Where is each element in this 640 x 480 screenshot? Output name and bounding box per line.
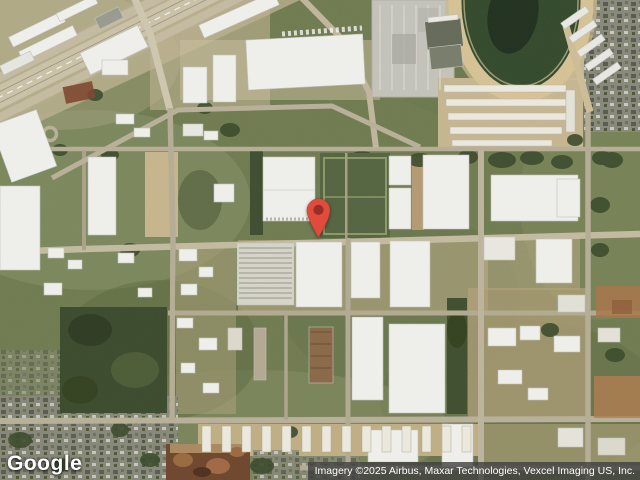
pin-body[interactable] <box>307 199 330 237</box>
map-viewport[interactable]: Google Imagery ©2025 Airbus, Maxar Techn… <box>0 0 640 480</box>
google-logo[interactable]: Google <box>7 452 82 476</box>
map-marker-icon[interactable] <box>306 197 331 239</box>
attribution-bar: Imagery ©2025 Airbus, Maxar Technologies… <box>308 462 640 480</box>
pin-dot <box>313 205 323 215</box>
attribution-text: Imagery ©2025 Airbus, Maxar Technologies… <box>315 465 635 477</box>
satellite-imagery <box>0 0 640 480</box>
